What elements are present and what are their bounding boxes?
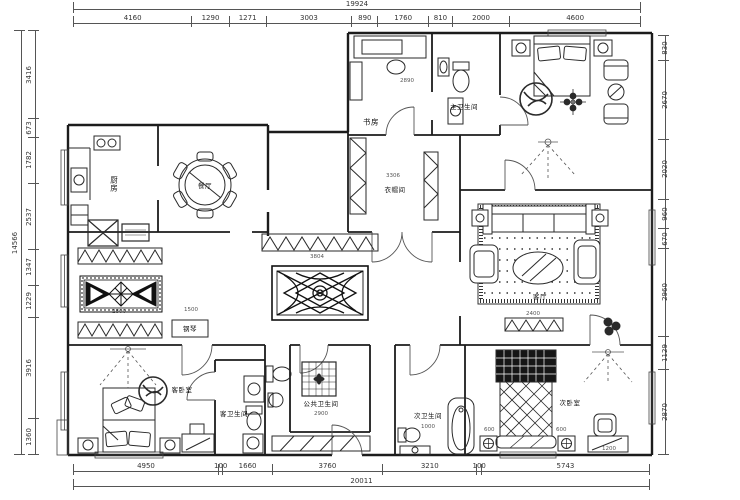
second-bedroom-ceiling-light	[584, 350, 632, 385]
dim-segment: 1360	[28, 418, 39, 454]
ornate-carpet	[272, 266, 368, 320]
dim-segment: 670	[658, 228, 669, 249]
master-plant	[560, 89, 586, 115]
window-marks	[57, 30, 655, 458]
dim-segment: 19924	[73, 2, 640, 13]
room-label-guest-bedroom: 客卧室	[172, 384, 193, 394]
guest-ceiling-light	[100, 347, 156, 389]
dim-segment: 960	[658, 199, 669, 228]
living-console	[505, 318, 563, 331]
dim-chain-bottom: 49501001660376032101005743	[73, 464, 650, 475]
elevator-shaft	[88, 220, 149, 246]
cloakroom-wardrobes	[350, 138, 438, 220]
dim-total-left: 14566	[14, 30, 25, 455]
dim-segment: 2960	[658, 248, 669, 335]
dim-segment: 2870	[658, 369, 669, 454]
entry-bench	[272, 436, 370, 451]
room-label-public-bath: 公共卫生间	[304, 398, 339, 408]
living-sofa-set	[470, 204, 608, 284]
dim-segment: 1660	[222, 464, 271, 475]
room-label-second-bedroom: 次卧室	[560, 397, 581, 407]
dim-segment: 20011	[73, 479, 649, 490]
dim-segment: 3003	[266, 16, 352, 27]
dim-segment: 1290	[191, 16, 228, 27]
master-bed	[512, 36, 612, 96]
room-label-dining: 餐厅	[198, 180, 212, 190]
floor-plan-canvas: 19924 4160129012713003890176081020004600…	[0, 0, 740, 500]
dim-segment: 1760	[377, 16, 428, 27]
dim-segment: 3210	[382, 464, 476, 475]
entry-rug	[80, 276, 162, 312]
dim-segment: 1271	[229, 16, 266, 27]
dim-segment: 4600	[509, 16, 640, 27]
room-label-cloakroom: 衣帽间	[385, 184, 406, 194]
dim-segment: 1782	[28, 137, 39, 184]
room-label-living: 客厅	[533, 291, 547, 301]
study-desk	[350, 36, 426, 100]
dim-total-bottom: 20011	[73, 479, 650, 490]
room-label-second-bath: 次卫生间	[414, 410, 442, 420]
room-label-piano: 钢琴	[183, 323, 197, 333]
dim-segment: 4950	[73, 464, 218, 475]
dim-segment: 1347	[28, 249, 39, 284]
room-label-kitchen: 厨房	[109, 176, 120, 192]
dim-segment: 830	[658, 35, 669, 60]
guest-dresser	[182, 424, 214, 452]
room-label-master-bath: 主卫生间	[450, 101, 478, 111]
master-ceiling-light	[520, 139, 576, 178]
dim-segment: 14566	[14, 30, 25, 454]
dim-segment: 890	[351, 16, 377, 27]
dim-segment: 2670	[658, 60, 669, 139]
dim-segment: 2000	[452, 16, 509, 27]
guest-round-chair	[139, 377, 167, 405]
master-round-chair	[520, 83, 552, 115]
dim-segment: 5743	[481, 464, 649, 475]
floor-plan-drawing	[0, 0, 740, 500]
dim-chain-top: 4160129012713003890176081020004600	[73, 16, 641, 27]
dim-segment: 673	[28, 118, 39, 136]
dim-segment: 1129	[658, 336, 669, 370]
second-bath-fixtures	[398, 398, 474, 455]
dim-total-top: 19924	[73, 2, 641, 13]
room-label-guest-bath: 客卫生间	[220, 408, 248, 418]
dim-segment: 3416	[28, 30, 39, 118]
dim-chain-left: 3416673178225371347122939161360	[28, 30, 39, 455]
hall-console	[262, 234, 378, 251]
master-bath-fixtures	[438, 58, 469, 124]
dim-segment: 4160	[73, 16, 191, 27]
balcony-chairs	[604, 60, 628, 124]
dim-segment: 3760	[272, 464, 382, 475]
second-bedroom-chair-tv	[588, 414, 628, 452]
dim-chain-right: 83026702020960670296011292870	[658, 35, 669, 455]
dim-segment: 810	[428, 16, 452, 27]
dim-segment: 3916	[28, 317, 39, 418]
room-label-study: 书房	[363, 117, 379, 128]
dim-segment: 2537	[28, 183, 39, 249]
dim-segment: 2020	[658, 139, 669, 199]
dim-segment: 1229	[28, 285, 39, 317]
